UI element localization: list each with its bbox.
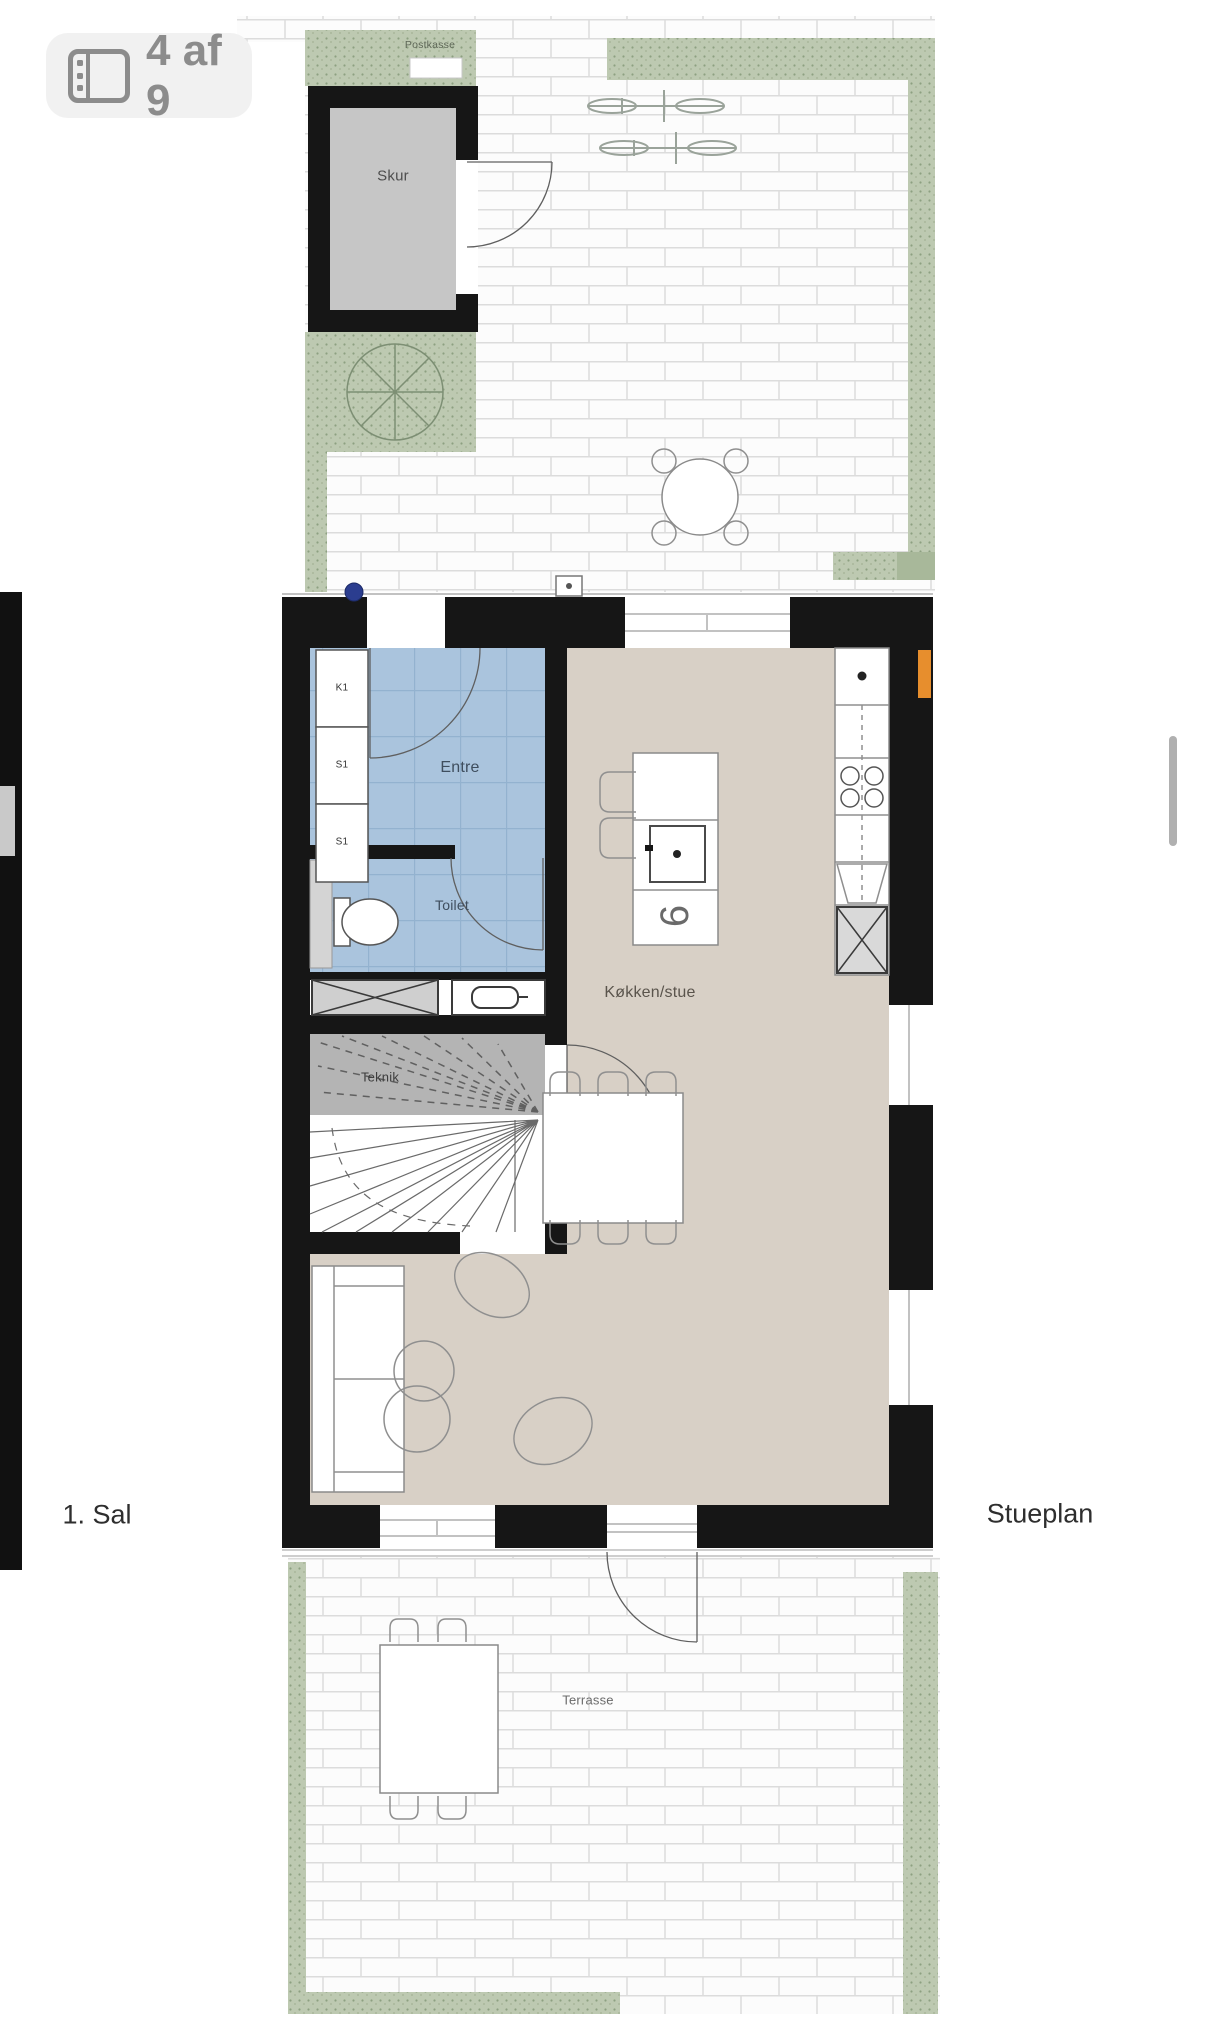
room-label-entre: Entre — [440, 759, 479, 777]
screen: 4 af 9 — [0, 0, 1206, 2038]
terrace-hedge-bottom — [288, 1992, 620, 2014]
window-bottom — [380, 1505, 495, 1548]
sink-dot — [858, 672, 867, 681]
toilet-fixture — [334, 898, 398, 946]
room-label-kitchen: Køkken/stue — [604, 984, 695, 1002]
closet-label-s1b: S1 — [336, 837, 349, 848]
mailbox — [410, 58, 462, 78]
entrance-marker — [556, 576, 582, 596]
floorplan-image: 6 — [0, 0, 1206, 2038]
window-right-2 — [889, 1290, 933, 1405]
washer-cabinet — [452, 980, 545, 1015]
closet-label-s1a: S1 — [336, 760, 349, 771]
room-label-terrace: Terrasse — [562, 1693, 613, 1708]
wall-core-upper — [545, 648, 567, 1045]
hedge-corner-bush — [897, 552, 935, 580]
sofa — [312, 1266, 404, 1492]
terrace-hedge-left — [288, 1562, 306, 2014]
floorplan-icon — [68, 49, 130, 103]
wall-left — [282, 597, 310, 1548]
terrace-table-set — [380, 1619, 498, 1819]
garden-courtyard — [237, 16, 935, 592]
terrace-hedge-right — [903, 1572, 938, 2014]
scrollbar-thumb[interactable] — [1169, 736, 1177, 846]
tree — [347, 344, 443, 440]
closet-label-k1: K1 — [336, 683, 349, 694]
terrace-door-threshold — [607, 1505, 697, 1548]
staircase-floor — [310, 1115, 545, 1232]
terrace — [288, 1552, 940, 2014]
house-ground-floor: 6 — [282, 576, 933, 1557]
window-right-1 — [889, 1005, 933, 1105]
hedge-right-column — [908, 80, 935, 580]
counter-crossbox — [837, 907, 887, 973]
orange-marker — [918, 650, 931, 698]
caption-first-floor: 1. Sal — [62, 1500, 131, 1531]
svg-text:6: 6 — [653, 905, 697, 927]
room-label-postkasse: Postkasse — [405, 39, 455, 51]
room-label-skur: Skur — [377, 168, 409, 185]
gallery-counter-label: 4 af 9 — [146, 26, 230, 126]
hedge-top-right — [607, 38, 935, 80]
room-label-teknik: Teknik — [361, 1070, 399, 1085]
kitchen-counter — [835, 648, 889, 975]
wall-stair-bottom — [282, 1232, 460, 1254]
room-label-toilet: Toilet — [435, 897, 469, 913]
gallery-counter-badge[interactable]: 4 af 9 — [46, 33, 252, 118]
entrance-dot — [345, 583, 363, 601]
caption-ground-floor: Stueplan — [987, 1499, 1094, 1530]
wardrobe-crossbox — [312, 980, 438, 1015]
hedge-left-column — [305, 452, 327, 592]
garden-path — [237, 16, 307, 42]
dining-table-set — [543, 1072, 683, 1244]
window-top — [625, 597, 790, 648]
